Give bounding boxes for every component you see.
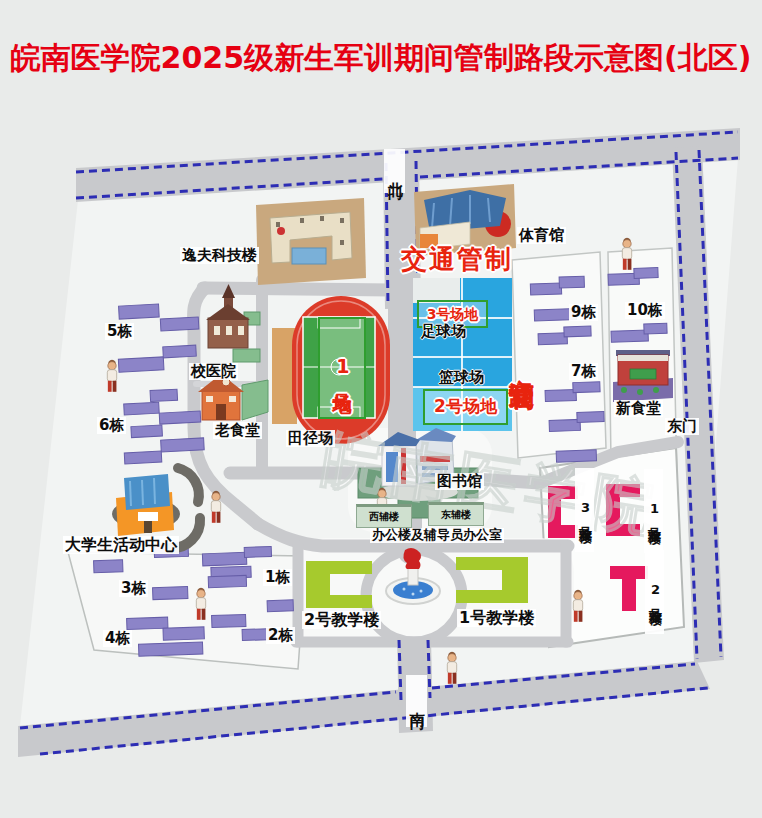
dorm-4-label: 4栋 [103,630,132,647]
campus-map-page: 皖南医学院2025级新生军训期间管制路段示意图(北区) [0,0,762,818]
lab-building-3-label: 3号实验楼 [575,468,594,552]
dorm-2-label: 2栋 [266,627,295,644]
teaching-building-2-label: 2号教学楼 [302,611,381,629]
venue-2-label: 2号场地 [432,397,499,417]
dorm-5-label: 5栋 [105,323,134,340]
east-gate-label: 东门 [665,418,699,435]
lab-building-1-label: 1号实验楼 [644,469,663,553]
lab-building-2-label: 2号实验楼 [645,550,664,634]
dorm-1-label: 1栋 [263,569,292,586]
school-hospital-label: 校医院 [189,363,238,380]
basketball-courts-label: 篮球场 [437,369,486,386]
old-canteen-label: 老食堂 [213,422,262,439]
venue-1-box: 1号场地 [318,317,366,419]
teaching-building-1-label: 1号教学楼 [457,609,536,627]
dorm-10-label: 10栋 [625,302,665,319]
yifu-science-label: 逸夫科技楼 [180,247,259,264]
dorm-7-label: 7栋 [569,363,598,380]
dorm-9-label: 9栋 [569,304,598,321]
football-field-label: 足球场 [419,323,468,340]
venue-1-label: 1号场地 [329,355,355,381]
dorm-6-label: 6栋 [97,417,126,434]
west-annex-label: 西辅楼 [356,504,412,528]
gymnasium-label: 体育馆 [517,227,566,244]
venue-2-box: 2号场地 [423,389,508,425]
venue-3-label: 3号场地 [425,306,481,322]
traffic-control-north-label: 交通管制 [399,245,515,275]
south-gate-label: 南门 [406,675,427,727]
yifu-science-building [256,198,366,285]
east-annex-label: 东辅楼 [428,502,484,526]
student-activity-center-label: 大学生活动中心 [63,536,179,554]
north-gate-label: 北门 [384,149,405,193]
new-canteen-label: 新食堂 [614,400,663,417]
track-label: 田径场 [286,430,335,447]
new-canteen-building [613,350,673,402]
dorm-3-label: 3栋 [119,580,148,597]
office-counselor-label: 办公楼及辅导员办公室 [370,528,504,543]
traffic-control-east-label: 交通管制 [504,296,538,428]
library-label: 图书馆 [435,473,484,490]
